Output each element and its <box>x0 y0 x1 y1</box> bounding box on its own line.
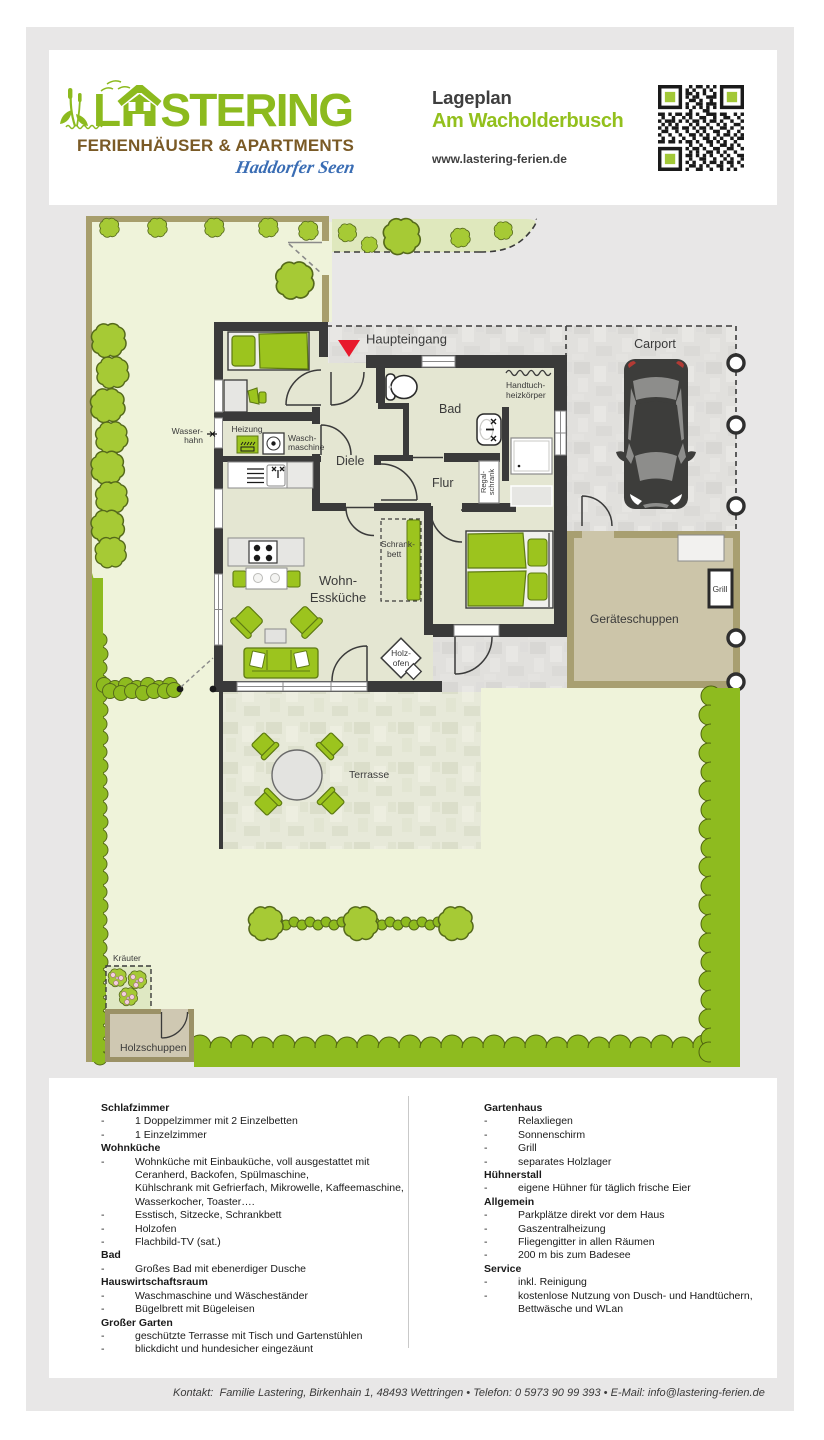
svg-text:Terrasse: Terrasse <box>349 769 389 781</box>
svg-text:Haupteingang: Haupteingang <box>366 332 447 347</box>
svg-text:Handtuch-: Handtuch- <box>506 380 545 390</box>
svg-text:Grill: Grill <box>712 584 727 594</box>
svg-text:Essküche: Essküche <box>310 590 366 605</box>
svg-text:Bad: Bad <box>439 402 461 416</box>
svg-text:Holz-: Holz- <box>391 648 411 658</box>
svg-text:Wohn-: Wohn- <box>319 573 357 588</box>
svg-text:Diele: Diele <box>336 454 365 468</box>
svg-text:schrank: schrank <box>487 469 496 496</box>
svg-text:Schrank-: Schrank- <box>381 539 415 549</box>
svg-text:Kräuter: Kräuter <box>113 953 141 963</box>
svg-text:maschine: maschine <box>288 442 325 452</box>
svg-text:Carport: Carport <box>634 337 676 351</box>
svg-text:ofen: ofen <box>393 658 410 668</box>
svg-text:hahn: hahn <box>184 435 203 445</box>
svg-text:Flur: Flur <box>432 476 454 490</box>
svg-text:heizkörper: heizkörper <box>506 390 546 400</box>
svg-text:bett: bett <box>387 549 402 559</box>
svg-text:Heizung: Heizung <box>231 424 262 434</box>
svg-text:Holzschuppen: Holzschuppen <box>120 1042 187 1054</box>
svg-text:Geräteschuppen: Geräteschuppen <box>590 612 679 626</box>
